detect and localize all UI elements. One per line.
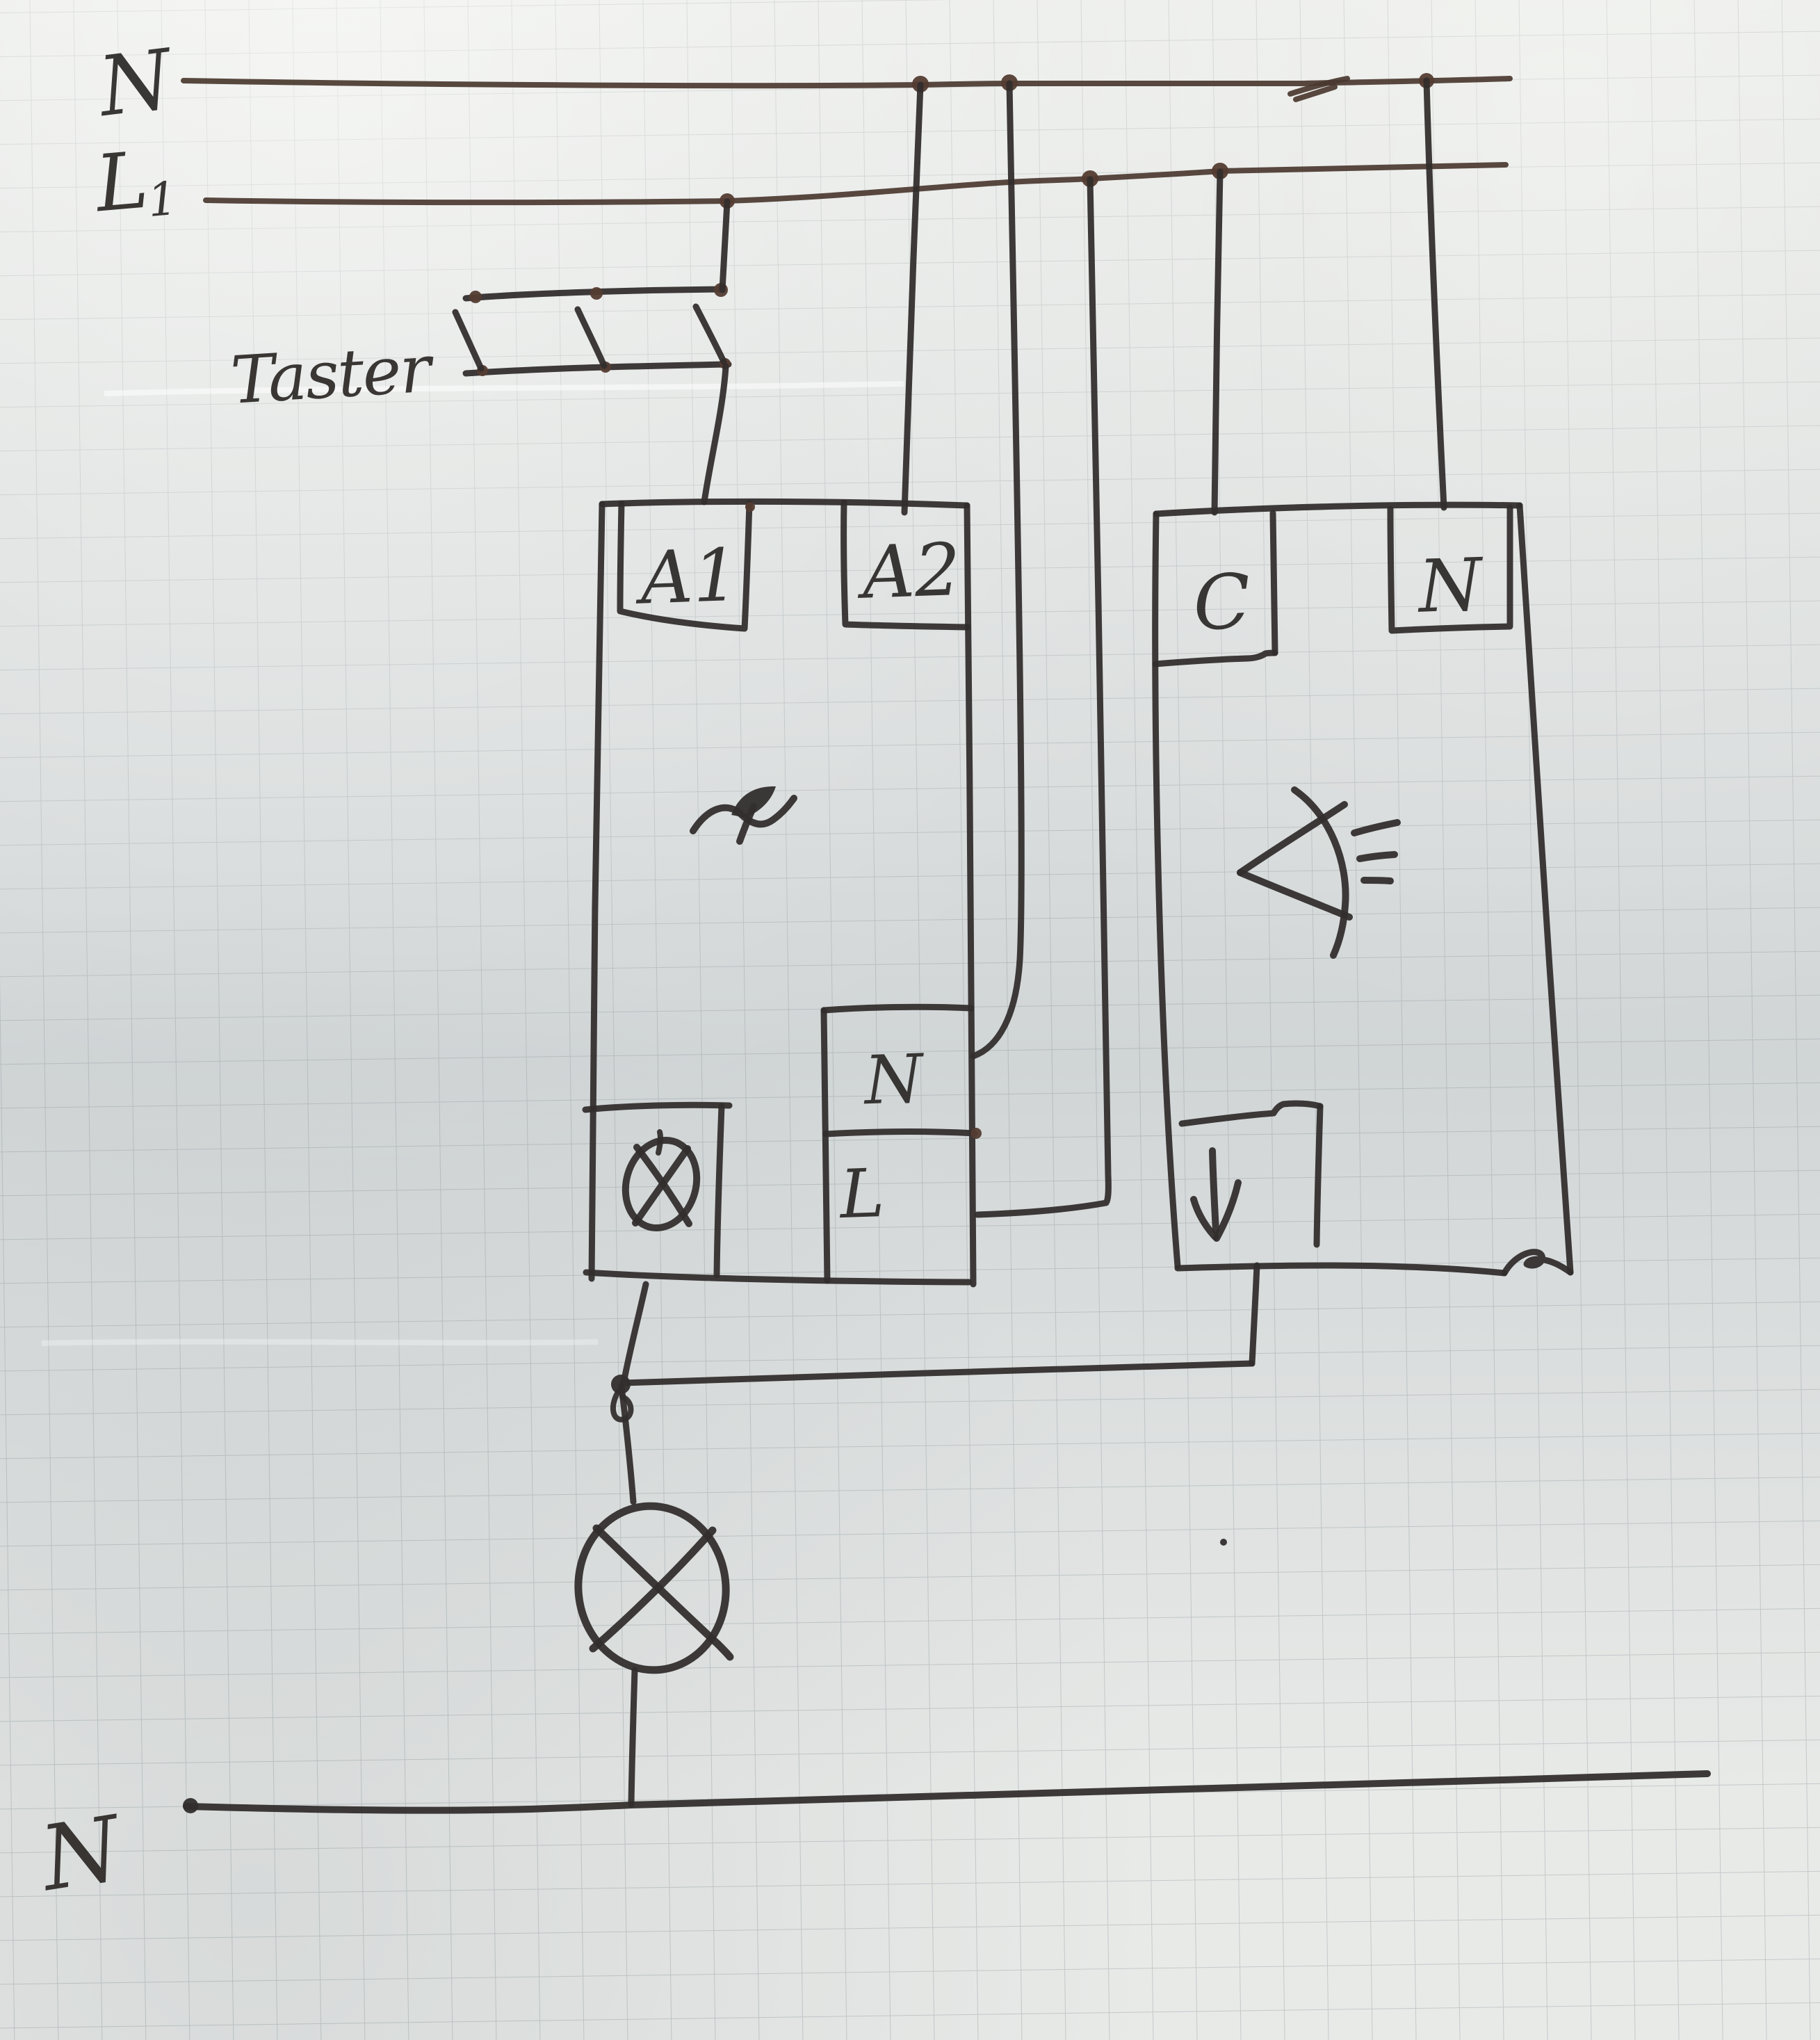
neutral-bus-label: N [92, 31, 179, 135]
terminal-label-a1: A1 [633, 533, 740, 621]
terminal-label-neutral: N [862, 1039, 927, 1119]
contact-dot [469, 291, 482, 303]
terminal-label-c: C [1191, 558, 1253, 648]
photo-of-hand-drawn-circuit: N L 1 Taster [0, 0, 1820, 2040]
circuit-sketch-svg: N L 1 Taster [0, 0, 1820, 2040]
terminal-label-a2: A2 [855, 527, 961, 615]
light-ray-dash-3 [1364, 880, 1390, 881]
paper-speck [1220, 1539, 1227, 1546]
terminal-box-c-right [1273, 513, 1275, 653]
terminal-divider-n-l [826, 1131, 975, 1134]
contact-dot [590, 287, 603, 300]
pen-junction-dot [745, 502, 755, 512]
light-ray-dash-2 [1360, 855, 1395, 859]
down-arrow-shaft [1212, 1151, 1216, 1231]
phase-bus-subscript: 1 [145, 172, 179, 227]
terminal-label-line: L [837, 1154, 886, 1233]
output-terminal-right [1317, 1106, 1320, 1245]
pushbutton-group-label: Taster [229, 331, 437, 419]
terminal-box-neutral-left [824, 1010, 827, 1281]
terminal-box-neutral-top [824, 1007, 971, 1010]
pen-tick [658, 1132, 660, 1153]
terminal-label-n: N [1415, 542, 1485, 629]
wire-lamp-to-neutral-bus [631, 1670, 635, 1804]
pen-junction-dot [970, 1128, 982, 1139]
phase-bus-label: L [91, 135, 152, 229]
paper-crease-lower [42, 1342, 598, 1343]
